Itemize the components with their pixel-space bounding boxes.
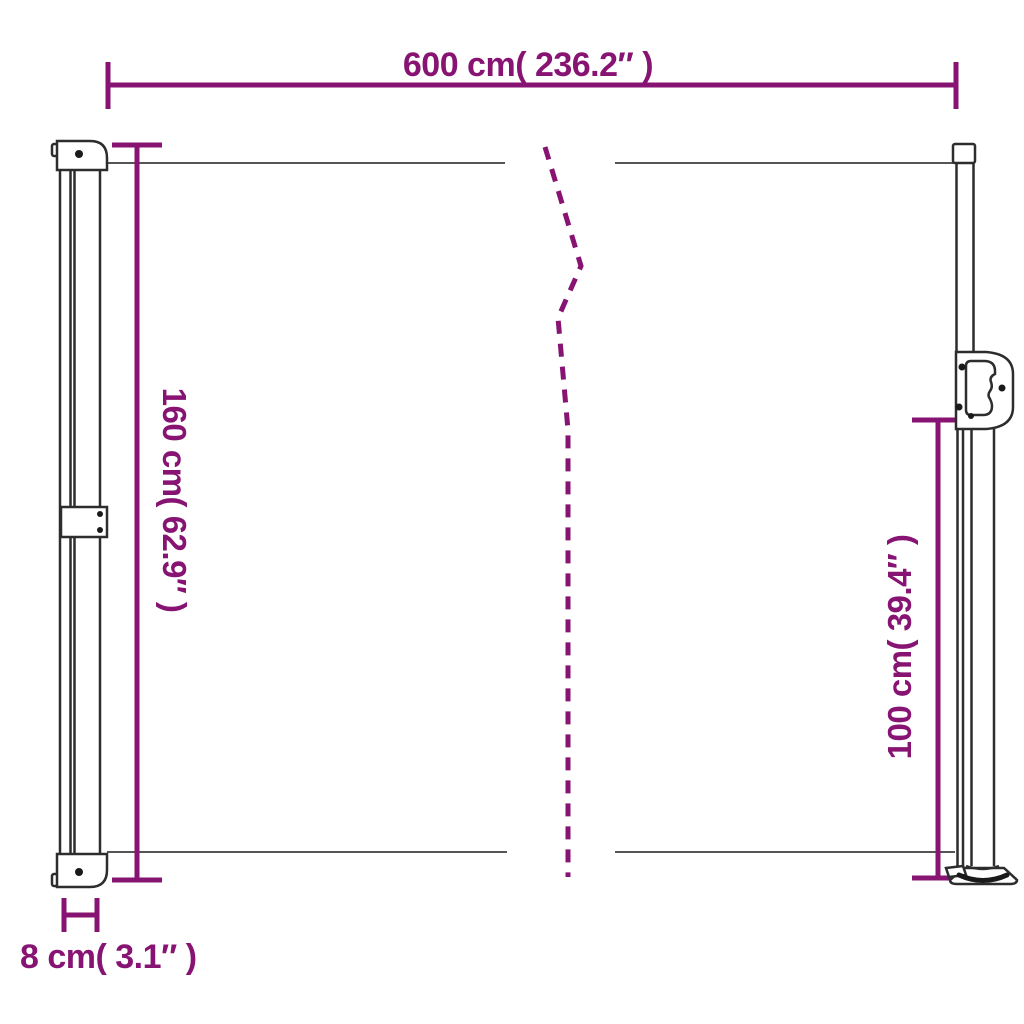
break-line xyxy=(545,147,581,877)
clamp-screw-top xyxy=(97,511,103,517)
pull-out-post xyxy=(946,144,1017,884)
clamp-screw-bottom xyxy=(97,527,103,533)
awning-fabric xyxy=(107,163,955,852)
depth-dimension-label: 8 cm( 3.1″ ) xyxy=(20,938,197,976)
handle-screw-2 xyxy=(999,385,1006,392)
handle-screw-1 xyxy=(959,364,966,371)
height-left-dimension-label: 160 cm( 62.9″ ) xyxy=(156,388,193,613)
cassette-bottom-screw xyxy=(75,868,83,876)
height-left-dimension: 160 cm( 62.9″ ) xyxy=(112,145,193,880)
width-dimension: 600 cm( 236.2″ ) xyxy=(108,46,956,109)
diagram-canvas: 600 cm( 236.2″ ) 160 cm( 62.9″ ) 100 cm(… xyxy=(0,0,1024,1024)
product-dimension-diagram: 600 cm( 236.2″ ) 160 cm( 62.9″ ) 100 cm(… xyxy=(0,0,1024,1024)
height-right-dimension: 100 cm( 39.4″ ) xyxy=(881,420,964,878)
cassette-top-screw xyxy=(75,150,83,158)
pull-handle xyxy=(956,352,1014,429)
cassette-pole xyxy=(52,141,107,887)
post-base xyxy=(946,866,1017,884)
handle-screw-4 xyxy=(968,413,974,419)
handle-grip-cutout xyxy=(966,361,995,415)
handle-screw-3 xyxy=(956,404,963,411)
depth-dimension: 8 cm( 3.1″ ) xyxy=(20,898,197,976)
height-right-dimension-label: 100 cm( 39.4″ ) xyxy=(881,535,918,760)
post-top-cap xyxy=(953,144,975,163)
width-dimension-label: 600 cm( 236.2″ ) xyxy=(403,46,653,84)
